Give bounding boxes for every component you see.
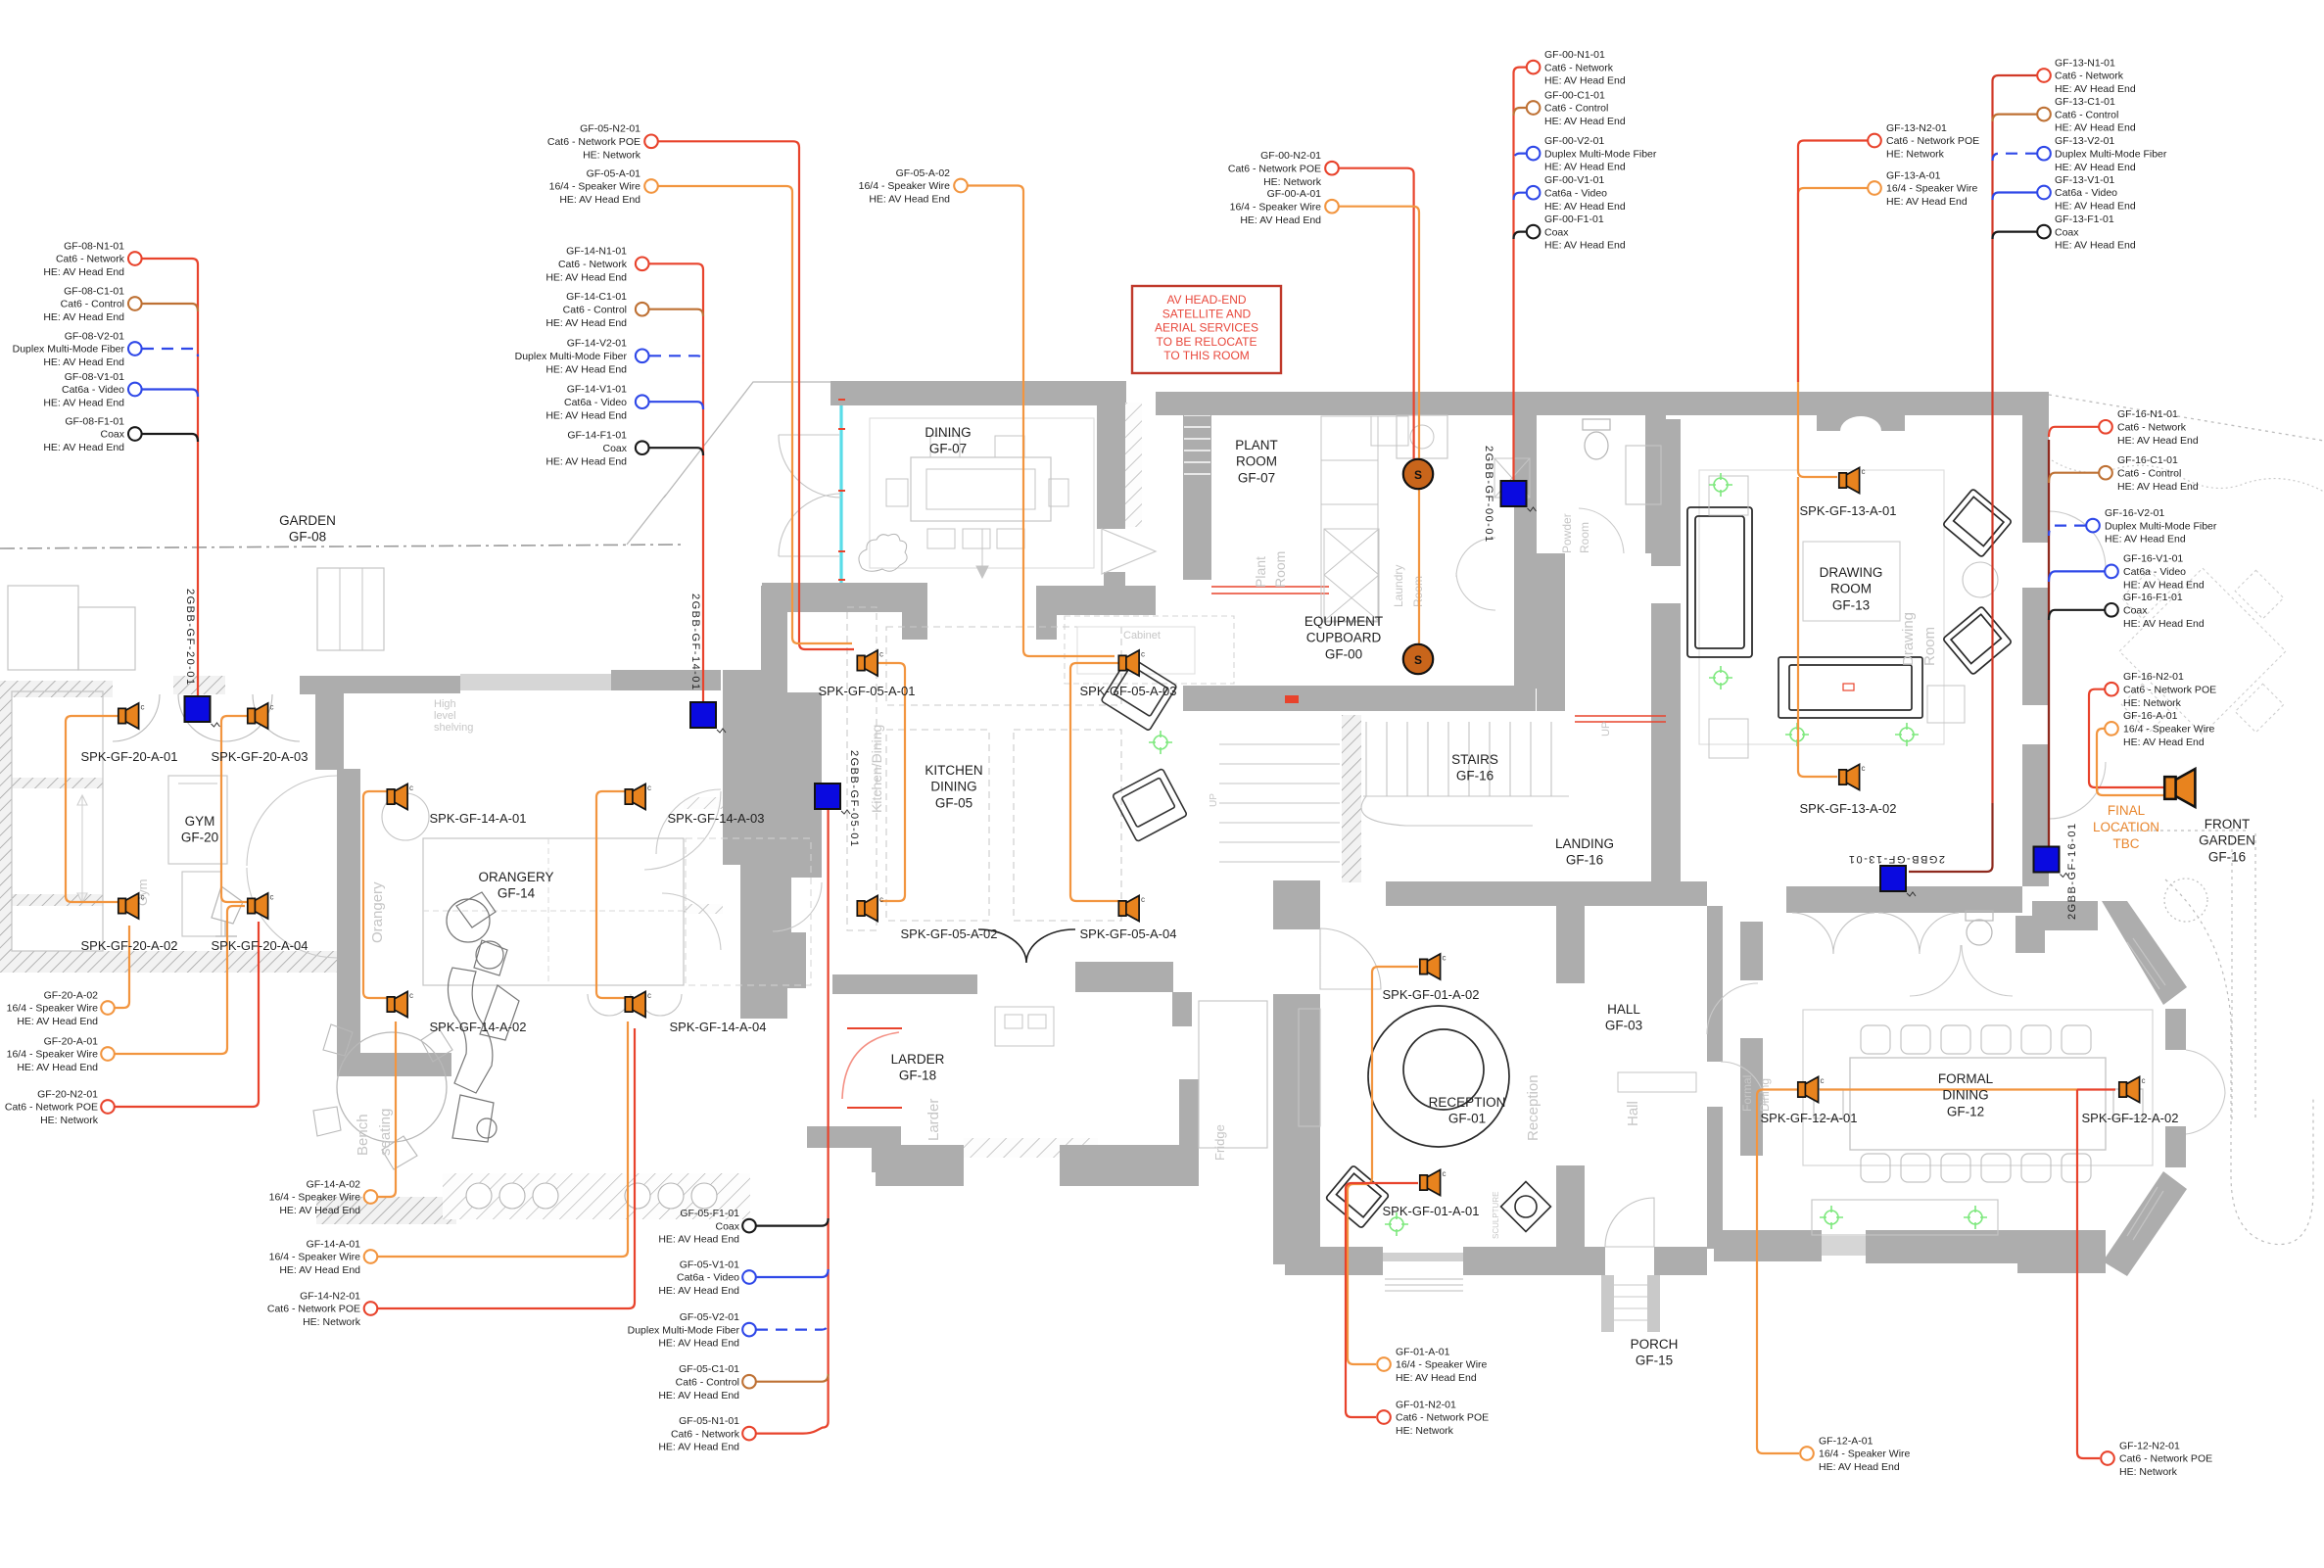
svg-text:GF-14-F1-01: GF-14-F1-01: [567, 430, 627, 442]
svg-text:Cat6 - Network POE: Cat6 - Network POE: [2119, 1453, 2212, 1465]
svg-text:HE: Network: HE: Network: [40, 1115, 99, 1126]
svg-text:Cat6 - Network: Cat6 - Network: [671, 1428, 740, 1440]
svg-text:SPK-GF-20-A-01: SPK-GF-20-A-01: [81, 749, 178, 764]
svg-text:HE: AV Head End: HE: AV Head End: [545, 455, 627, 467]
svg-text:HE: AV Head End: HE: AV Head End: [279, 1264, 360, 1276]
svg-text:DINING: DINING: [925, 425, 971, 440]
svg-text:GF-08-V1-01: GF-08-V1-01: [65, 371, 124, 383]
svg-text:TBC: TBC: [2113, 836, 2140, 851]
svg-text:S: S: [1414, 653, 1422, 667]
svg-text:GF-13-N1-01: GF-13-N1-01: [2055, 57, 2115, 69]
svg-text:c: c: [409, 991, 413, 1000]
svg-text:2GBB-GF-20-01: 2GBB-GF-20-01: [184, 589, 196, 687]
svg-text:GF-07: GF-07: [929, 442, 967, 456]
svg-text:HE: AV Head End: HE: AV Head End: [43, 311, 124, 323]
svg-text:HE: AV Head End: HE: AV Head End: [2123, 580, 2205, 592]
svg-text:GF-13-V1-01: GF-13-V1-01: [2055, 174, 2114, 186]
svg-text:SPK-GF-01-A-02: SPK-GF-01-A-02: [1383, 987, 1480, 1002]
svg-text:HE: AV Head End: HE: AV Head End: [658, 1442, 739, 1453]
svg-text:16/4 - Speaker Wire: 16/4 - Speaker Wire: [859, 180, 951, 192]
svg-text:HE: AV Head End: HE: AV Head End: [2055, 162, 2136, 173]
svg-text:GF-16: GF-16: [1456, 769, 1494, 784]
svg-text:Cat6 - Network: Cat6 - Network: [2055, 71, 2124, 82]
svg-text:16/4 - Speaker Wire: 16/4 - Speaker Wire: [269, 1192, 361, 1204]
svg-text:Duplex Multi-Mode Fiber: Duplex Multi-Mode Fiber: [2055, 148, 2167, 160]
svg-text:Cat6 - Network POE: Cat6 - Network POE: [2123, 684, 2216, 695]
svg-text:16/4 - Speaker Wire: 16/4 - Speaker Wire: [1396, 1359, 1488, 1371]
svg-text:UP: UP: [1209, 793, 1219, 807]
svg-text:GF-15: GF-15: [1636, 1354, 1673, 1368]
svg-text:GF-14-V1-01: GF-14-V1-01: [567, 384, 627, 396]
svg-text:c: c: [270, 703, 274, 712]
svg-text:GF-00-N2-01: GF-00-N2-01: [1260, 150, 1321, 162]
svg-text:Cat6 - Control: Cat6 - Control: [2117, 467, 2181, 479]
svg-text:LOCATION: LOCATION: [2093, 820, 2159, 834]
svg-text:Coax: Coax: [1544, 226, 1569, 238]
svg-text:Plant: Plant: [1253, 556, 1268, 588]
svg-text:2GBB-GF-05-01: 2GBB-GF-05-01: [848, 750, 860, 848]
svg-text:Cat6a - Video: Cat6a - Video: [2123, 566, 2186, 578]
svg-text:c: c: [270, 893, 274, 902]
svg-text:2GBB-GF-16-01: 2GBB-GF-16-01: [2066, 822, 2078, 920]
svg-text:Cat6 - Network POE: Cat6 - Network POE: [1886, 135, 1979, 147]
svg-text:HE: Network: HE: Network: [2123, 697, 2182, 709]
svg-text:shelving: shelving: [434, 722, 473, 734]
svg-text:Fridge: Fridge: [1212, 1124, 1227, 1161]
svg-text:HE: AV Head End: HE: AV Head End: [1396, 1372, 1477, 1384]
svg-text:16/4 - Speaker Wire: 16/4 - Speaker Wire: [7, 1003, 99, 1015]
svg-text:HE: AV Head End: HE: AV Head End: [2055, 201, 2136, 213]
svg-text:c: c: [1862, 467, 1866, 476]
svg-text:Cat6a - Video: Cat6a - Video: [62, 384, 124, 396]
svg-text:Kitchen/Dining: Kitchen/Dining: [869, 725, 884, 813]
svg-text:SPK-GF-05-A-01: SPK-GF-05-A-01: [819, 684, 916, 698]
svg-text:GF-13-F1-01: GF-13-F1-01: [2055, 214, 2114, 225]
svg-text:Cat6 - Network: Cat6 - Network: [56, 254, 125, 265]
svg-text:HE: AV Head End: HE: AV Head End: [43, 398, 124, 409]
svg-text:CUPBOARD: CUPBOARD: [1306, 631, 1382, 645]
svg-text:GF-05-V1-01: GF-05-V1-01: [680, 1259, 739, 1270]
svg-text:HE: Network: HE: Network: [1886, 149, 1945, 161]
svg-text:HE: AV Head End: HE: AV Head End: [43, 442, 124, 453]
svg-text:GF-08-C1-01: GF-08-C1-01: [64, 285, 124, 297]
svg-text:Dining: Dining: [1758, 1078, 1772, 1112]
svg-text:Formal: Formal: [1740, 1075, 1754, 1112]
svg-text:HE: AV Head End: HE: AV Head End: [1544, 240, 1626, 252]
svg-text:Cat6 - Network POE: Cat6 - Network POE: [267, 1304, 360, 1315]
svg-text:GF-05-C1-01: GF-05-C1-01: [679, 1363, 739, 1375]
svg-text:Bench: Bench: [355, 1114, 371, 1156]
svg-text:c: c: [647, 784, 651, 792]
svg-text:SPK-GF-05-A-02: SPK-GF-05-A-02: [901, 927, 998, 941]
svg-text:GF-08-V2-01: GF-08-V2-01: [65, 330, 124, 342]
svg-text:GF-00-F1-01: GF-00-F1-01: [1544, 214, 1604, 225]
svg-text:GF-13-A-01: GF-13-A-01: [1886, 169, 1941, 181]
svg-text:16/4 - Speaker Wire: 16/4 - Speaker Wire: [1886, 183, 1978, 195]
svg-text:2GBB-GF-14-01: 2GBB-GF-14-01: [689, 594, 701, 691]
svg-text:Coax: Coax: [2055, 226, 2079, 238]
svg-text:c: c: [1141, 895, 1145, 904]
svg-text:SPK-GF-12-A-02: SPK-GF-12-A-02: [2082, 1111, 2179, 1125]
svg-text:c: c: [1141, 650, 1145, 659]
svg-text:GF-13-V2-01: GF-13-V2-01: [2055, 135, 2114, 147]
svg-text:High: High: [434, 698, 456, 710]
svg-text:AERIAL SERVICES: AERIAL SERVICES: [1155, 321, 1258, 335]
svg-text:GF-00-V1-01: GF-00-V1-01: [1544, 174, 1604, 186]
svg-text:HE: AV Head End: HE: AV Head End: [559, 194, 640, 206]
svg-text:Duplex Multi-Mode Fiber: Duplex Multi-Mode Fiber: [628, 1324, 740, 1336]
svg-text:Cat6a - Video: Cat6a - Video: [2055, 187, 2117, 199]
svg-text:HE: AV Head End: HE: AV Head End: [1544, 201, 1626, 213]
svg-text:DINING: DINING: [930, 780, 976, 794]
svg-text:Coax: Coax: [100, 429, 124, 441]
svg-text:GF-00-V2-01: GF-00-V2-01: [1544, 135, 1604, 147]
svg-text:HE: AV Head End: HE: AV Head End: [658, 1285, 739, 1297]
svg-text:HE: AV Head End: HE: AV Head End: [658, 1390, 739, 1402]
svg-text:GF-05-A-02: GF-05-A-02: [896, 167, 951, 179]
svg-text:GF-16-F1-01: GF-16-F1-01: [2123, 592, 2183, 603]
svg-text:GF-00-N1-01: GF-00-N1-01: [1544, 49, 1605, 61]
svg-text:GF-13: GF-13: [1832, 597, 1870, 612]
svg-text:SPK-GF-14-A-04: SPK-GF-14-A-04: [670, 1020, 767, 1034]
svg-text:Coax: Coax: [715, 1220, 739, 1232]
svg-text:FORMAL: FORMAL: [1938, 1071, 1994, 1086]
svg-text:GF-05-F1-01: GF-05-F1-01: [680, 1208, 739, 1219]
svg-text:KITCHEN: KITCHEN: [925, 763, 982, 778]
svg-text:Cat6 - Control: Cat6 - Control: [563, 304, 627, 315]
svg-text:HE: AV Head End: HE: AV Head End: [1544, 75, 1626, 87]
svg-text:SPK-GF-01-A-01: SPK-GF-01-A-01: [1383, 1204, 1480, 1218]
svg-text:Cat6 - Network POE: Cat6 - Network POE: [1228, 163, 1321, 174]
svg-text:GF-16-V1-01: GF-16-V1-01: [2123, 553, 2183, 565]
svg-text:HE: AV Head End: HE: AV Head End: [2055, 122, 2136, 134]
svg-text:SCULPTURE: SCULPTURE: [1492, 1192, 1500, 1239]
svg-text:TO BE RELOCATE: TO BE RELOCATE: [1157, 335, 1257, 349]
svg-text:seating: seating: [377, 1109, 394, 1156]
svg-text:Hall: Hall: [1625, 1101, 1641, 1126]
svg-text:SPK-GF-14-A-02: SPK-GF-14-A-02: [430, 1020, 527, 1034]
svg-text:GF-05: GF-05: [935, 795, 972, 810]
svg-text:Cat6a - Video: Cat6a - Video: [677, 1272, 739, 1284]
svg-text:FINAL: FINAL: [2108, 803, 2146, 818]
svg-text:HE: AV Head End: HE: AV Head End: [43, 266, 124, 278]
svg-text:Powder: Powder: [1560, 513, 1574, 553]
svg-text:GF-00: GF-00: [1325, 646, 1362, 661]
svg-text:HE: AV Head End: HE: AV Head End: [2117, 481, 2199, 493]
svg-text:GF-01-N2-01: GF-01-N2-01: [1396, 1399, 1456, 1410]
svg-text:GF-08-N1-01: GF-08-N1-01: [64, 240, 124, 252]
svg-text:HE: AV Head End: HE: AV Head End: [17, 1016, 98, 1027]
svg-text:GF-20-A-01: GF-20-A-01: [44, 1035, 99, 1047]
svg-text:HE: AV Head End: HE: AV Head End: [2123, 736, 2205, 748]
svg-text:HE: AV Head End: HE: AV Head End: [869, 194, 950, 206]
svg-text:S: S: [1414, 468, 1422, 482]
svg-text:GARDEN: GARDEN: [279, 513, 336, 528]
svg-text:Cat6 - Control: Cat6 - Control: [1544, 103, 1608, 115]
svg-text:GF-16: GF-16: [2208, 849, 2246, 864]
svg-text:SPK-GF-20-A-04: SPK-GF-20-A-04: [212, 938, 308, 953]
svg-text:c: c: [2142, 1076, 2146, 1085]
svg-text:GF-18: GF-18: [899, 1069, 936, 1083]
svg-text:Larder: Larder: [925, 1099, 942, 1141]
svg-text:PLANT: PLANT: [1235, 438, 1278, 452]
svg-text:SPK-GF-05-A-04: SPK-GF-05-A-04: [1080, 927, 1177, 941]
svg-text:Room: Room: [1578, 522, 1591, 553]
svg-text:Cat6 - Network: Cat6 - Network: [558, 259, 628, 270]
svg-text:GF-20-A-02: GF-20-A-02: [44, 989, 99, 1001]
svg-text:Cat6 - Network POE: Cat6 - Network POE: [547, 136, 640, 148]
svg-text:ROOM: ROOM: [1236, 454, 1277, 469]
svg-text:GF-16: GF-16: [1566, 853, 1603, 868]
svg-text:SPK-GF-12-A-01: SPK-GF-12-A-01: [1761, 1111, 1858, 1125]
svg-text:HE: AV Head End: HE: AV Head End: [545, 409, 627, 421]
svg-text:c: c: [1862, 764, 1866, 773]
svg-text:GF-05-A-01: GF-05-A-01: [587, 167, 641, 179]
svg-text:c: c: [879, 895, 883, 904]
svg-text:GARDEN: GARDEN: [2199, 833, 2255, 848]
svg-text:Duplex Multi-Mode Fiber: Duplex Multi-Mode Fiber: [515, 351, 628, 362]
svg-text:HE: AV Head End: HE: AV Head End: [2123, 618, 2205, 630]
svg-text:GF-07: GF-07: [1238, 470, 1275, 485]
svg-text:RECEPTION: RECEPTION: [1429, 1095, 1506, 1110]
svg-text:Cat6a - Video: Cat6a - Video: [1544, 187, 1607, 199]
svg-text:Cat6 - Network POE: Cat6 - Network POE: [1396, 1412, 1489, 1424]
svg-text:EQUIPMENT: EQUIPMENT: [1304, 614, 1383, 629]
svg-text:Cat6 - Network: Cat6 - Network: [1544, 62, 1614, 73]
svg-text:FRONT: FRONT: [2205, 817, 2251, 832]
svg-text:HE: AV Head End: HE: AV Head End: [658, 1338, 739, 1350]
svg-text:Laundry: Laundry: [1392, 565, 1405, 607]
svg-text:GF-05-N1-01: GF-05-N1-01: [679, 1415, 739, 1427]
svg-text:GF-16-N1-01: GF-16-N1-01: [2117, 408, 2178, 420]
svg-text:SPK-GF-14-A-03: SPK-GF-14-A-03: [668, 811, 765, 826]
svg-text:SPK-GF-20-A-03: SPK-GF-20-A-03: [212, 749, 308, 764]
svg-text:GF-12-N2-01: GF-12-N2-01: [2119, 1440, 2180, 1451]
svg-text:GF-20: GF-20: [181, 831, 218, 845]
svg-text:GF-13-N2-01: GF-13-N2-01: [1886, 122, 1947, 134]
svg-text:GF-08: GF-08: [289, 530, 326, 545]
svg-text:Drawing: Drawing: [1900, 612, 1917, 666]
svg-text:GF-14-A-01: GF-14-A-01: [307, 1238, 361, 1250]
svg-text:HE: AV Head End: HE: AV Head End: [1240, 214, 1321, 226]
svg-text:SPK-GF-14-A-01: SPK-GF-14-A-01: [430, 811, 527, 826]
svg-text:ROOM: ROOM: [1830, 582, 1872, 596]
svg-text:16/4 - Speaker Wire: 16/4 - Speaker Wire: [1819, 1449, 1911, 1460]
svg-text:16/4 - Speaker Wire: 16/4 - Speaker Wire: [2123, 724, 2215, 736]
svg-text:GYM: GYM: [185, 814, 215, 829]
svg-text:GF-01-A-01: GF-01-A-01: [1396, 1346, 1450, 1357]
svg-text:Cat6 - Control: Cat6 - Control: [61, 299, 124, 310]
svg-text:GF-14-N2-01: GF-14-N2-01: [300, 1290, 360, 1302]
svg-text:GF-12-A-01: GF-12-A-01: [1819, 1435, 1873, 1447]
svg-text:AV HEAD-END: AV HEAD-END: [1166, 293, 1246, 307]
svg-text:GF-14-C1-01: GF-14-C1-01: [566, 291, 627, 303]
svg-text:HE: Network: HE: Network: [1263, 176, 1322, 188]
svg-text:HE: AV Head End: HE: AV Head End: [2055, 240, 2136, 252]
svg-text:GF-05-V2-01: GF-05-V2-01: [680, 1311, 739, 1323]
svg-text:GF-00-A-01: GF-00-A-01: [1267, 188, 1322, 200]
svg-text:GF-16-V2-01: GF-16-V2-01: [2105, 507, 2164, 519]
svg-text:HE: AV Head End: HE: AV Head End: [279, 1205, 360, 1216]
svg-text:UP: UP: [1600, 722, 1612, 736]
svg-text:16/4 - Speaker Wire: 16/4 - Speaker Wire: [549, 181, 641, 193]
svg-text:16/4 - Speaker Wire: 16/4 - Speaker Wire: [1230, 201, 1322, 213]
svg-text:level: level: [434, 710, 456, 722]
svg-text:Room: Room: [1272, 551, 1288, 588]
svg-text:c: c: [879, 650, 883, 659]
svg-text:ORANGERY: ORANGERY: [478, 870, 553, 884]
svg-text:GF-05-N2-01: GF-05-N2-01: [580, 123, 640, 135]
svg-text:Reception: Reception: [1525, 1074, 1541, 1141]
svg-text:GF-14-N1-01: GF-14-N1-01: [566, 246, 627, 258]
svg-text:16/4 - Speaker Wire: 16/4 - Speaker Wire: [7, 1049, 99, 1061]
svg-text:GF-13-C1-01: GF-13-C1-01: [2055, 96, 2115, 108]
svg-text:Duplex Multi-Mode Fiber: Duplex Multi-Mode Fiber: [13, 344, 125, 356]
svg-text:c: c: [647, 991, 651, 1000]
svg-text:Cabinet: Cabinet: [1123, 630, 1161, 641]
svg-text:2GBB-GF-00-01: 2GBB-GF-00-01: [1483, 446, 1494, 544]
svg-text:GF-16-C1-01: GF-16-C1-01: [2117, 454, 2178, 466]
svg-text:Cat6a - Video: Cat6a - Video: [564, 397, 627, 408]
svg-text:HE: Network: HE: Network: [583, 149, 641, 161]
svg-text:LANDING: LANDING: [1555, 836, 1614, 851]
svg-text:GF-16-N2-01: GF-16-N2-01: [2123, 671, 2184, 683]
svg-text:c: c: [141, 893, 145, 902]
svg-text:LARDER: LARDER: [891, 1052, 945, 1067]
svg-text:HE: AV Head End: HE: AV Head End: [545, 317, 627, 329]
svg-text:GF-20-N2-01: GF-20-N2-01: [37, 1088, 98, 1100]
svg-text:PORCH: PORCH: [1631, 1337, 1679, 1352]
svg-text:GF-00-C1-01: GF-00-C1-01: [1544, 89, 1605, 101]
svg-text:GF-16-A-01: GF-16-A-01: [2123, 710, 2178, 722]
svg-text:GF-01: GF-01: [1448, 1112, 1486, 1126]
svg-text:Coax: Coax: [602, 443, 627, 454]
svg-text:DRAWING: DRAWING: [1820, 565, 1883, 580]
svg-text:GF-03: GF-03: [1605, 1019, 1642, 1033]
svg-text:Duplex Multi-Mode Fiber: Duplex Multi-Mode Fiber: [1544, 148, 1657, 160]
svg-text:HE: AV Head End: HE: AV Head End: [1886, 196, 1968, 208]
svg-text:2GBB-GF-13-01: 2GBB-GF-13-01: [1847, 853, 1945, 865]
svg-text:HE: Network: HE: Network: [303, 1316, 361, 1328]
svg-text:Cat6 - Network: Cat6 - Network: [2117, 422, 2187, 434]
svg-text:GF-14-A-02: GF-14-A-02: [307, 1178, 361, 1190]
svg-text:HALL: HALL: [1607, 1002, 1640, 1017]
svg-text:HE: AV Head End: HE: AV Head End: [2117, 435, 2199, 447]
svg-text:SPK-GF-05-A-03: SPK-GF-05-A-03: [1080, 684, 1177, 698]
svg-text:DINING: DINING: [1942, 1088, 1988, 1103]
svg-text:GF-08-F1-01: GF-08-F1-01: [65, 415, 124, 427]
svg-text:Orangery: Orangery: [369, 881, 386, 943]
svg-text:Room: Room: [1921, 627, 1938, 666]
svg-text:STAIRS: STAIRS: [1451, 752, 1498, 767]
svg-text:c: c: [141, 703, 145, 712]
svg-text:Coax: Coax: [2123, 605, 2148, 617]
svg-text:c: c: [409, 784, 413, 792]
svg-text:TO THIS ROOM: TO THIS ROOM: [1163, 349, 1250, 362]
svg-text:SPK-GF-13-A-02: SPK-GF-13-A-02: [1800, 801, 1897, 816]
svg-text:c: c: [1443, 954, 1447, 963]
svg-text:SPK-GF-13-A-01: SPK-GF-13-A-01: [1800, 503, 1897, 518]
svg-text:HE: AV Head End: HE: AV Head End: [1544, 162, 1626, 173]
svg-text:Cat6 - Control: Cat6 - Control: [676, 1376, 739, 1388]
svg-text:HE: AV Head End: HE: AV Head End: [2105, 534, 2186, 546]
svg-text:HE: AV Head End: HE: AV Head End: [658, 1234, 739, 1246]
svg-text:GF-14-V2-01: GF-14-V2-01: [567, 338, 627, 350]
svg-text:Cat6 - Control: Cat6 - Control: [2055, 109, 2118, 120]
svg-text:HE: AV Head End: HE: AV Head End: [1544, 116, 1626, 127]
svg-text:GF-12: GF-12: [1947, 1104, 1984, 1118]
svg-text:GF-14: GF-14: [498, 886, 536, 901]
svg-text:SPK-GF-20-A-02: SPK-GF-20-A-02: [81, 938, 178, 953]
svg-text:HE: AV Head End: HE: AV Head End: [545, 271, 627, 283]
svg-text:HE: AV Head End: HE: AV Head End: [545, 363, 627, 375]
svg-text:SATELLITE AND: SATELLITE AND: [1162, 307, 1252, 320]
svg-text:c: c: [1821, 1076, 1825, 1085]
svg-text:HE: Network: HE: Network: [1396, 1425, 1454, 1437]
svg-text:16/4 - Speaker Wire: 16/4 - Speaker Wire: [269, 1252, 361, 1263]
svg-text:HE: AV Head End: HE: AV Head End: [17, 1062, 98, 1073]
svg-text:HE: AV Head End: HE: AV Head End: [43, 356, 124, 368]
svg-text:Cat6 - Network POE: Cat6 - Network POE: [5, 1102, 98, 1114]
svg-text:HE: Network: HE: Network: [2119, 1466, 2178, 1478]
svg-text:HE: AV Head End: HE: AV Head End: [2055, 83, 2136, 95]
svg-text:c: c: [1443, 1169, 1447, 1178]
svg-text:HE: AV Head End: HE: AV Head End: [1819, 1461, 1900, 1473]
svg-text:Duplex Multi-Mode Fiber: Duplex Multi-Mode Fiber: [2105, 520, 2217, 532]
